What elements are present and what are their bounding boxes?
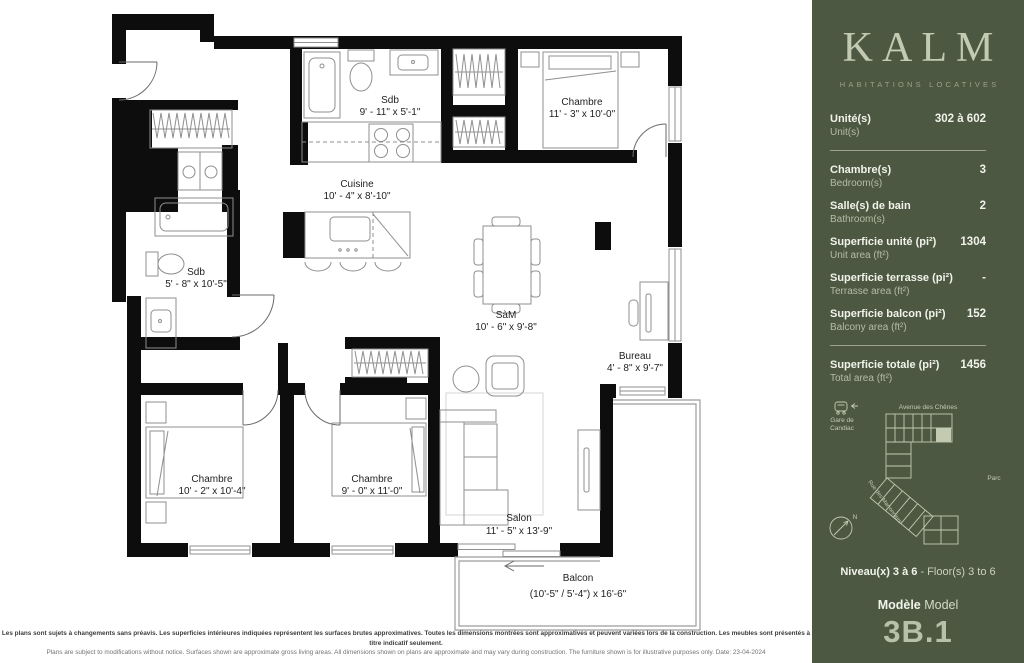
room-label-chambre-tr: Chambre <box>561 97 603 108</box>
spec-row-bedrooms: Chambre(s) Bedroom(s) 3 <box>830 164 986 189</box>
room-dims-chambre-bl: 10' - 2" x 10'-4" <box>178 486 246 497</box>
divider <box>830 345 986 346</box>
entry-closet <box>150 110 232 148</box>
spec-value: 1304 <box>960 236 986 248</box>
spec-row-balcony-area: Superficie balcon (pi²) Balcony area (ft… <box>830 308 986 333</box>
spec-label-fr: Superficie balcon (pi²) <box>830 308 946 320</box>
entry-door <box>119 62 157 100</box>
spec-value: 3 <box>980 164 986 176</box>
spec-label-en: Unit(s) <box>830 127 871 138</box>
kitchen-counter <box>302 122 441 162</box>
salon-rug <box>446 393 543 515</box>
spec-value: 152 <box>967 308 986 320</box>
room-dims-balcon: (10'-5" / 5'-4") x 16'-6" <box>530 589 627 600</box>
room-label-sam: SàM <box>496 310 517 321</box>
bedroom-bl-door <box>243 390 278 425</box>
washer-dryer <box>178 152 222 190</box>
room-label-balcon: Balcon <box>563 573 594 584</box>
spec-label-fr: Superficie unité (pi²) <box>830 236 936 248</box>
model-fr: Modèle <box>878 598 921 612</box>
room-label-chambre-bm: Chambre <box>351 474 393 485</box>
spec-label-en: Bathroom(s) <box>830 214 911 225</box>
spec-label-en: Bedroom(s) <box>830 178 891 189</box>
room-label-salon: Salon <box>506 513 532 524</box>
dining-table <box>474 217 540 313</box>
floors-en: - Floor(s) 3 to 6 <box>917 566 995 578</box>
bathtub-top <box>304 52 340 118</box>
round-side-table <box>453 366 479 392</box>
map-park-label: Parc <box>987 475 1001 482</box>
room-dims-bureau: 4' - 8" x 9'-7" <box>607 363 663 374</box>
armchair <box>486 356 524 396</box>
spec-rows: Unité(s) Unit(s) 302 à 602 Chambre(s) Be… <box>830 113 986 384</box>
spec-row-terrace-area: Superficie terrasse (pi²) Terrasse area … <box>830 272 986 297</box>
spec-value: 302 à 602 <box>935 113 986 125</box>
model-en: Model <box>921 598 959 612</box>
room-dims-cuisine: 10' - 4" x 8'-10" <box>323 191 391 202</box>
closet-hall-upper <box>453 49 505 95</box>
site-map: Gare de Candiac Avenue des Chênes Parc R… <box>824 398 1014 550</box>
room-dims-sdb-top: 9' - 11" x 5'-1" <box>360 107 421 118</box>
room-dims-chambre-tr: 11' - 3" x 10'-0" <box>549 109 616 120</box>
spec-value: 1456 <box>960 359 986 371</box>
floors-line: Niveau(x) 3 à 6 - Floor(s) 3 to 6 <box>812 566 1024 578</box>
disclaimer-fr: Les plans sont sujets à changements sans… <box>0 629 812 648</box>
room-label-chambre-bl: Chambre <box>191 474 233 485</box>
map-street-top: Avenue des Chênes <box>899 404 958 411</box>
compass-north-label: N <box>853 514 858 521</box>
toilet-left <box>146 252 184 276</box>
highlighted-unit <box>936 429 951 442</box>
spec-label-en: Balcony area (ft²) <box>830 322 946 333</box>
map-station-line1: Gare de <box>830 417 854 424</box>
kitchen-island <box>305 212 410 271</box>
brand-logo: KALM <box>812 24 1024 72</box>
compass-icon <box>830 517 852 539</box>
spec-label-fr: Unité(s) <box>830 113 871 125</box>
spec-label-fr: Superficie terrasse (pi²) <box>830 272 953 284</box>
bedroom-bm-door <box>305 390 340 425</box>
divider <box>830 150 986 151</box>
spec-value: - <box>982 272 986 284</box>
model-line: Modèle Model <box>812 598 1024 612</box>
spec-label-en: Unit area (ft²) <box>830 250 936 261</box>
bathroom-left-door <box>232 295 274 337</box>
train-icon <box>835 402 858 414</box>
spec-label-fr: Superficie totale (pi²) <box>830 359 939 371</box>
disclaimer-en: Plans are subject to modifications witho… <box>0 648 812 658</box>
disclaimer: Les plans sont sujets à changements sans… <box>0 629 812 658</box>
stove <box>369 124 413 162</box>
toilet-top <box>348 50 374 91</box>
room-label-bureau: Bureau <box>619 351 651 362</box>
room-label-sdb-left: Sdb <box>187 267 205 278</box>
room-label-sdb-top: Sdb <box>381 95 399 106</box>
spec-label-fr: Chambre(s) <box>830 164 891 176</box>
arrow-left-icon <box>852 404 859 409</box>
spec-row-total-area: Superficie totale (pi²) Total area (ft²)… <box>830 359 986 384</box>
info-sidebar: KALM HABITATIONS LOCATIVES Unité(s) Unit… <box>812 0 1024 663</box>
tv-console <box>578 430 600 510</box>
room-dims-salon: 11' - 5" x 13'-9" <box>486 526 553 537</box>
map-station-line2: Candiac <box>830 425 855 432</box>
bed-bottom-left <box>146 402 243 523</box>
room-label-cuisine: Cuisine <box>340 179 374 190</box>
sofa-sectional <box>440 410 508 525</box>
room-dims-sam: 10' - 6" x 9'-8" <box>475 322 537 333</box>
floor-plan: Sdb 9' - 11" x 5'-1" Chambre 11' - 3" x … <box>0 0 812 663</box>
spec-row-units: Unité(s) Unit(s) 302 à 602 <box>830 113 986 138</box>
spec-value: 2 <box>980 200 986 212</box>
brochure-page: Sdb 9' - 11" x 5'-1" Chambre 11' - 3" x … <box>0 0 1024 663</box>
room-dims-chambre-bm: 9' - 0" x 11'-0" <box>342 486 403 497</box>
spec-label-en: Total area (ft²) <box>830 373 939 384</box>
closet-hallway <box>352 349 428 377</box>
bedroom-tr-door <box>633 124 666 157</box>
spec-label-en: Terrasse area (ft²) <box>830 286 953 297</box>
spec-row-bathrooms: Salle(s) de bain Bathroom(s) 2 <box>830 200 986 225</box>
floors-fr: Niveau(x) 3 à 6 <box>840 566 917 578</box>
model-code: 3B.1 <box>812 614 1024 650</box>
building-outline <box>870 414 958 544</box>
vanity-top <box>390 50 438 75</box>
closet-hall-lower <box>453 117 505 147</box>
spec-label-fr: Salle(s) de bain <box>830 200 911 212</box>
room-dims-sdb-left: 5' - 8" x 10'-5" <box>165 279 227 290</box>
brand-tagline: HABITATIONS LOCATIVES <box>812 80 1024 89</box>
spec-row-unit-area: Superficie unité (pi²) Unit area (ft²) 1… <box>830 236 986 261</box>
desk <box>629 282 668 340</box>
